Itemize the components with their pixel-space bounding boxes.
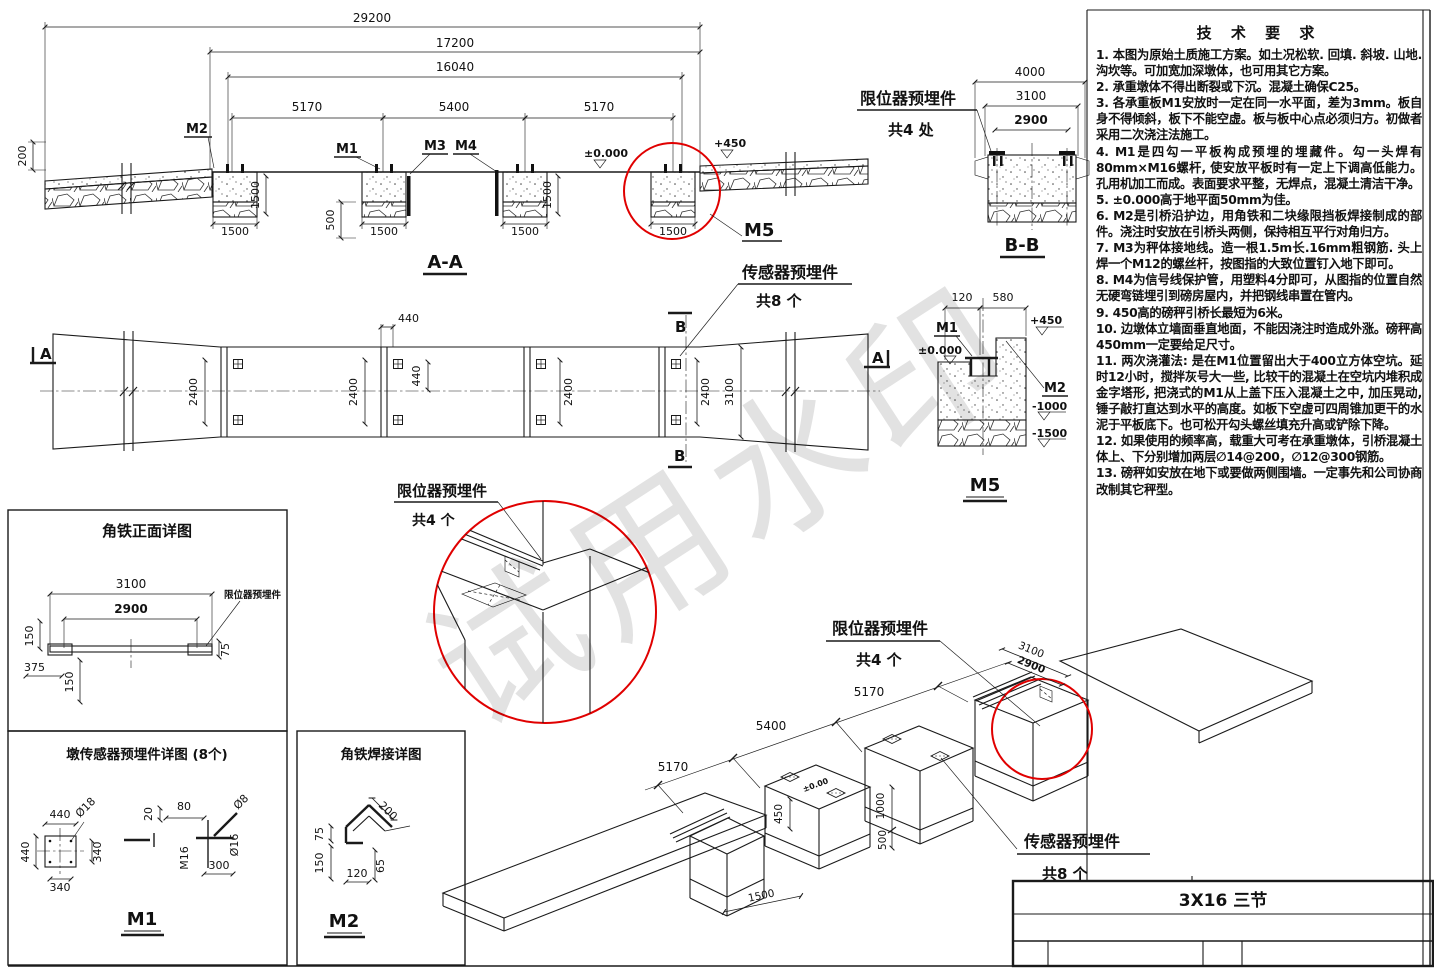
dim-65: 65	[374, 859, 387, 873]
dim-150: 150	[23, 626, 36, 647]
zoom-circle	[434, 501, 656, 723]
title-block: 3X16 三节	[1013, 876, 1433, 966]
view-title-bb: B-B	[1005, 235, 1040, 256]
tech-line: 7. M3为秤体接地线。造一根1.5m长.16mm粗钢筋. 头上焊一个M12的螺…	[1096, 240, 1422, 272]
section-mark-b: B	[675, 318, 686, 336]
dim-200: 200	[376, 799, 400, 823]
limiter-count: 共4 个	[412, 512, 456, 529]
dim-29200: 29200	[353, 11, 391, 25]
dim-440-v: 440	[410, 366, 423, 387]
level-zero: ±0.000	[584, 147, 628, 160]
dim-450: 450	[773, 804, 785, 824]
tech-line: 9. 450高的磅秤引桥长最短为6米。	[1096, 305, 1422, 321]
detail-title: 角铁焊接详图	[341, 746, 422, 763]
label-m2: M2	[1044, 381, 1066, 396]
dim-500: 500	[324, 210, 337, 231]
dim-120: 120	[347, 867, 368, 880]
dim-500: 500	[877, 830, 889, 850]
pier: 1500	[651, 164, 695, 238]
section-aa-view: 29200 17200 16040 5170 5400 5170 200 150…	[16, 11, 868, 274]
m3-ground-rod	[407, 176, 411, 216]
dim-150: 150	[313, 853, 326, 874]
iso-highlight-circle	[992, 679, 1092, 779]
tech-requirements: 技 术 要 求 1. 本图为原始土质施工方案。如土况松软. 回填. 斜坡. 山地…	[1096, 22, 1422, 498]
drawing-sheet: 29200 17200 16040 5170 5400 5170 200 150…	[0, 0, 1434, 969]
detail-title: 角铁正面详图	[102, 522, 192, 540]
dim-1500: 1500	[221, 225, 249, 238]
dim-20: 20	[142, 807, 155, 821]
plate-group: 2400	[659, 347, 712, 437]
dim-440: 440	[19, 842, 32, 863]
label-m1: M1	[936, 321, 958, 336]
limiter-callout: 限位器预埋件	[397, 482, 487, 500]
plate-group: 2400	[187, 347, 243, 437]
m4-signal-tube	[495, 170, 499, 216]
iso-sensor-callout: 传感器预埋件	[1023, 832, 1120, 851]
plan-view: 2400 2400 2400 2400 440 440 3100 A	[30, 263, 890, 467]
iso-limiter-callout: 限位器预埋件	[832, 619, 928, 638]
title-block-model: 3X16 三节	[1179, 890, 1268, 911]
level-minus1000: -1000	[1032, 400, 1068, 413]
limiter-zoom-detail: 限位器预埋件 共4 个	[394, 482, 656, 752]
dim-3100: 3100	[723, 378, 736, 406]
detail-title-m5: M5	[970, 475, 1000, 496]
plan-sensor-callout: 传感器预埋件	[741, 263, 838, 282]
level-zero-iso: ±0.00	[802, 776, 830, 794]
detail-mark-m1: M1	[127, 909, 157, 930]
dim-200: 200	[16, 146, 29, 167]
detail-m5-view: 120 580 M1 ±0.000 +450 M2 -1000 -1500 M5	[918, 291, 1068, 501]
dim-5400: 5400	[439, 100, 470, 114]
dia-8: Ø8	[231, 792, 251, 812]
dim-4000: 4000	[1015, 65, 1046, 79]
section-bb-view: 限位器预埋件 共4 处 4000 3100 2900 B-B	[857, 65, 1089, 257]
plate-group: 2400	[524, 347, 575, 437]
dim-150: 150	[63, 672, 76, 693]
dim-3100: 3100	[1016, 89, 1047, 103]
dim-2900: 2900	[114, 602, 147, 616]
dim-80: 80	[177, 800, 191, 813]
dim-2900: 2900	[1014, 113, 1047, 127]
dim-5170: 5170	[658, 760, 689, 774]
level-plus450: +450	[714, 137, 747, 150]
detail-angle-weld: 角铁焊接详图 200 75 150 120 65 M2	[297, 731, 465, 965]
dim-580: 580	[993, 291, 1014, 304]
tech-line: 1. 本图为原始土质施工方案。如土况松软. 回填. 斜坡. 山地. 沟坎等。可加…	[1096, 47, 1422, 79]
level-plus450: +450	[1030, 314, 1063, 327]
bb-limiter-count: 共4 处	[888, 121, 935, 139]
dim-5170: 5170	[584, 100, 615, 114]
bb-limiter-callout: 限位器预埋件	[860, 89, 956, 108]
section-mark-a: A	[40, 345, 52, 363]
dim-120: 120	[952, 291, 973, 304]
tech-title: 技 术 要 求	[1096, 22, 1422, 43]
dim-17200: 17200	[436, 36, 474, 50]
dim-1500-v: 1500	[541, 181, 554, 209]
dim-1000: 1000	[875, 793, 887, 820]
dia-16: Ø16	[228, 834, 241, 857]
tech-line: 3. 各承重板M1安放时一定在同一水平面，差为3mm。板自身不得倾斜，板下不能空…	[1096, 95, 1422, 143]
tech-line: 5. ±0.000高于地平面50mm为佳。	[1096, 192, 1422, 208]
dim-1500: 1500	[511, 225, 539, 238]
label-m2: M2	[186, 122, 208, 137]
dim-3100: 3100	[116, 577, 147, 591]
dim-2400: 2400	[699, 378, 712, 406]
section-mark-a: A	[872, 349, 884, 367]
tech-line: 10. 边墩体立墙面垂直地面，不能因浇注时造成外涨。磅秤高450mm一定要给足尺…	[1096, 321, 1422, 353]
detail-pier-sensor: 墩传感器预埋件详图 (8个) 440 Ø18 440 340 340 20 80…	[8, 731, 287, 965]
dim-340: 340	[50, 881, 71, 894]
tech-line: 2. 承重墩体不得出断裂或下沉。混凝土确保C25。	[1096, 79, 1422, 95]
dim-2400: 2400	[562, 378, 575, 406]
iso-limiter-count: 共4 个	[856, 651, 903, 669]
dim-375: 375	[24, 661, 45, 674]
plate-group: 2400	[347, 347, 403, 437]
dim-5400: 5400	[756, 719, 787, 733]
plan-sensor-count: 共8 个	[756, 292, 803, 310]
detail-angle-front: 角铁正面详图 3100 2900 150 375 150 75 限位器预埋件	[8, 510, 287, 731]
dia-18: Ø18	[73, 795, 98, 820]
dim-16040: 16040	[436, 60, 474, 74]
label-m4: M4	[455, 139, 477, 154]
dim-2400: 2400	[347, 378, 360, 406]
detail-title: 墩传感器预埋件详图 (8个)	[66, 746, 227, 763]
label-m5: M5	[744, 220, 774, 241]
level-minus1500: -1500	[1032, 427, 1068, 440]
dim-75: 75	[219, 643, 232, 657]
tech-line: 11. 两次浇灌法: 是在M1位置留出大于400立方体空坑。延时12小时，搅拌灰…	[1096, 353, 1422, 433]
tech-line: 4. M1是四勾一平板构成预埋的埋藏件。勾一头焊有80mm×M16螺杆, 使安放…	[1096, 144, 1422, 192]
dim-5170: 5170	[854, 685, 885, 699]
limiter-callout-small: 限位器预埋件	[224, 589, 282, 601]
pier: 1500	[362, 164, 406, 238]
isometric-view: 1500 ±0.00 450 1000 500 310	[443, 619, 1312, 931]
label-m3: M3	[424, 139, 446, 154]
dim-1500-v: 1500	[249, 181, 262, 209]
dim-340: 340	[91, 842, 104, 863]
label-m1: M1	[336, 142, 358, 157]
tech-line: 6. M2是引桥沿护边，用角铁和二块缘限挡板焊接制成的部件。浇注时安放在引桥头两…	[1096, 208, 1422, 240]
detail-mark-m2: M2	[329, 911, 359, 932]
dim-1500: 1500	[659, 225, 687, 238]
tech-line: 13. 磅秤如安放在地下或要做两侧围墙。一定事先和公司协商改制其它秤型。	[1096, 465, 1422, 497]
level-zero: ±0.000	[918, 344, 962, 357]
section-mark-b: B	[674, 447, 685, 465]
dim-440: 440	[398, 312, 419, 325]
view-title-aa: A-A	[427, 252, 462, 273]
tech-line: 12. 如果使用的频率高，载重大可考在承重墩体，引桥混凝土体上、下分别增加两层∅…	[1096, 433, 1422, 465]
tech-line: 8. M4为信号线保护管，用塑料4分即可，从图指的位置自然无硬弯链埋引到磅房屋内…	[1096, 272, 1422, 304]
thread-m16: M16	[178, 846, 191, 870]
dim-75: 75	[313, 827, 326, 841]
dim-2400: 2400	[187, 378, 200, 406]
dim-300: 300	[209, 859, 230, 872]
dim-440: 440	[50, 808, 71, 821]
dim-1500: 1500	[370, 225, 398, 238]
dim-5170: 5170	[292, 100, 323, 114]
